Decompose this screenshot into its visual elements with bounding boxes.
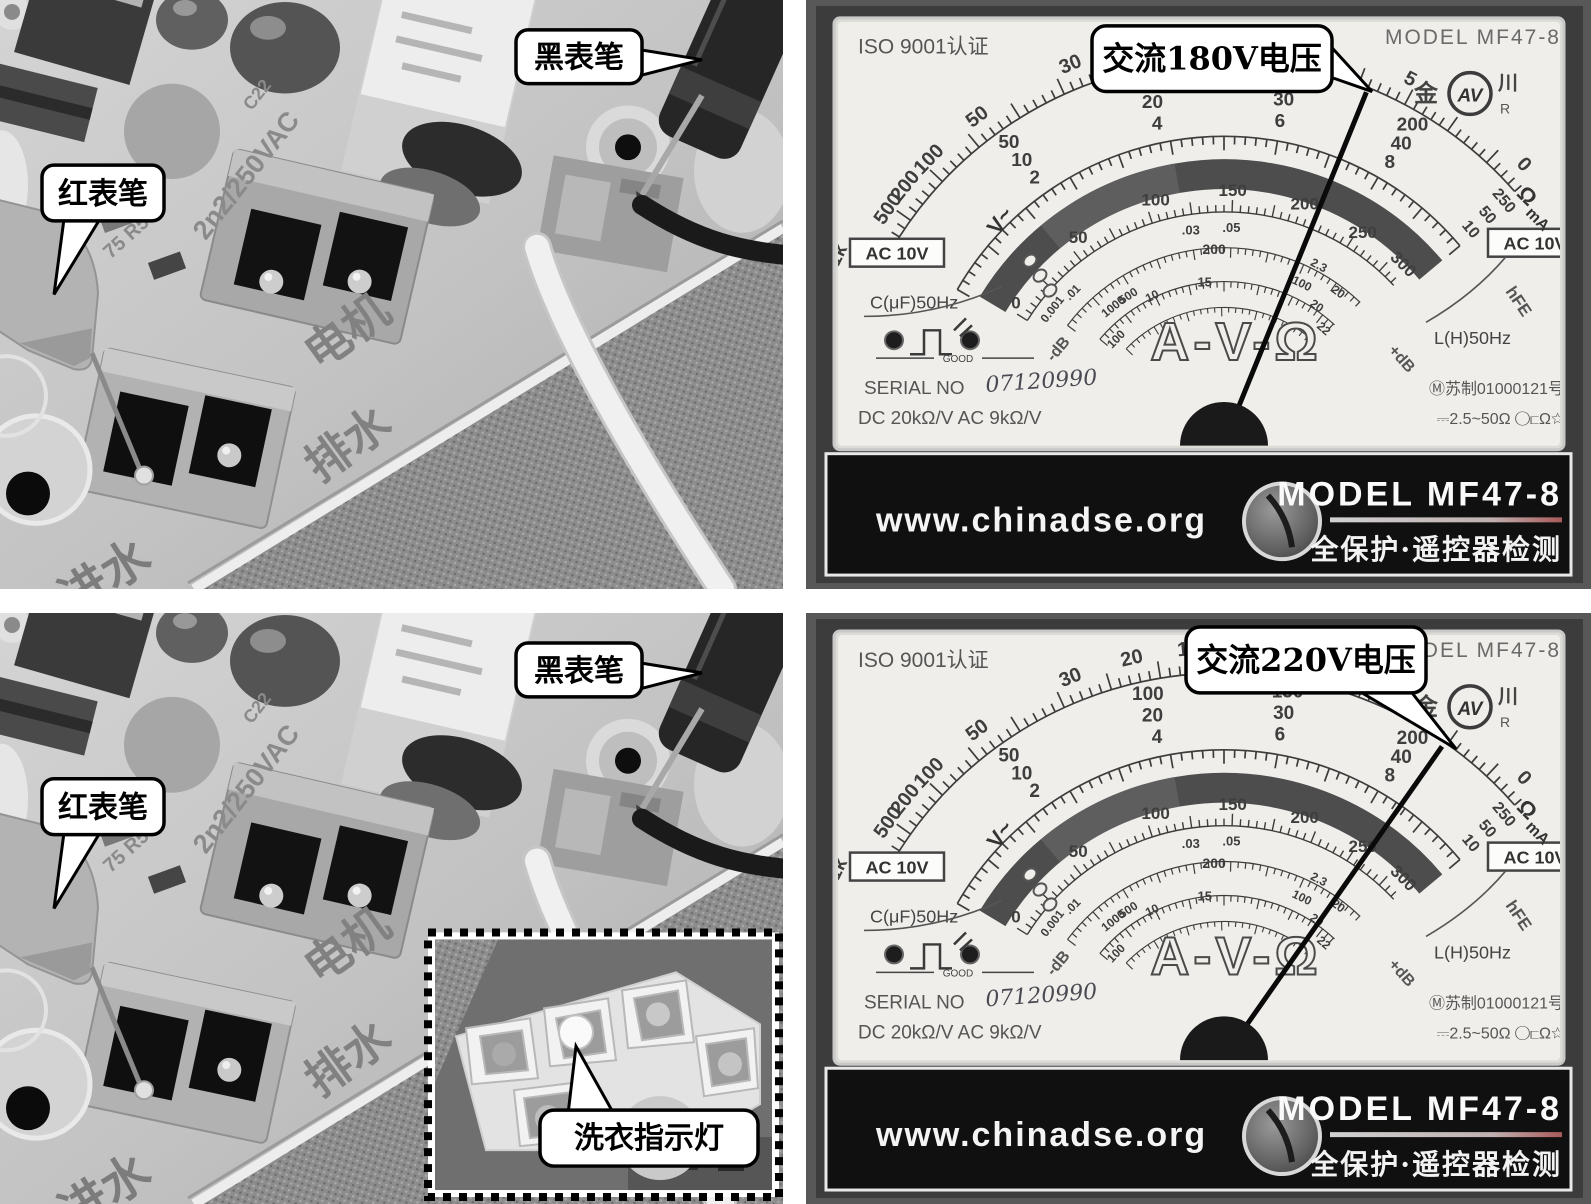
sensitivity: DC 20kΩ/V AC 9kΩ/V	[858, 1022, 1042, 1043]
ac10v_badge: AC 10V	[1504, 234, 1567, 254]
band-separator	[1330, 1132, 1562, 1137]
range_note: ⎓2.5~50Ω ◯⊏Ω☆	[1437, 411, 1564, 428]
scale-label: 2	[1029, 781, 1040, 802]
brand_r: R	[1500, 714, 1510, 730]
photo-board-180v: 黑表笔 红表笔	[0, 0, 783, 589]
scale-label: 200	[1291, 194, 1319, 213]
website: www.chinadse.org	[875, 501, 1207, 539]
callout-ac-voltage-label: 交流220V电压	[1196, 641, 1416, 679]
photo-meter-220v: 5002001005030201510501k4k∞05010210020415…	[806, 613, 1591, 1204]
band-separator	[1330, 517, 1562, 522]
scale-label: 8	[1385, 152, 1396, 173]
svg-text:黑表笔: 黑表笔	[534, 654, 624, 689]
scale-label: 30	[1273, 703, 1294, 724]
scale-label: 40	[1391, 747, 1412, 768]
scale-label: 200	[1202, 855, 1226, 871]
scale-label: 20	[1142, 705, 1163, 726]
scale-label: 0	[1011, 293, 1020, 312]
scale-label: 100	[1141, 191, 1169, 210]
led	[646, 1002, 670, 1026]
scale-label: 150	[1219, 795, 1247, 814]
ac10v_badge: AC 10V	[866, 244, 929, 264]
scale-label: 4	[1152, 727, 1163, 748]
scale-label: 6	[1275, 111, 1286, 132]
scale-label: 50	[1069, 842, 1088, 861]
range_note: ⎓2.5~50Ω ◯⊏Ω☆	[1437, 1025, 1564, 1042]
brand_r: R	[1500, 100, 1510, 116]
multimeter: 5002001005030201510501k4k∞05010210020415…	[806, 0, 1591, 589]
scale-label: 100	[1141, 804, 1169, 823]
scale-label: 50	[1069, 228, 1088, 247]
website: www.chinadse.org	[875, 1116, 1207, 1154]
photo-board-220v: 黑表笔 红表笔	[0, 613, 783, 1204]
iso_label: ISO 9001认证	[858, 649, 989, 672]
brand_mid: AV	[1457, 86, 1484, 107]
scale-label: 100	[1132, 684, 1164, 705]
indicator-led	[885, 331, 903, 349]
callout-wash-indicator-label: 洗衣指示灯	[574, 1121, 724, 1156]
led	[718, 1052, 742, 1076]
brand_mid: AV	[1457, 699, 1484, 720]
callout-ac-voltage: 交流180V电压	[1092, 26, 1372, 92]
multimeter: 5002001005030201510501k4k∞05010210020415…	[806, 613, 1591, 1204]
scale-label: .03	[1182, 222, 1200, 237]
ac10v_badge: AC 10V	[1504, 848, 1567, 868]
scale-label: 0	[1011, 907, 1020, 926]
serial_label: SERIAL NO	[864, 378, 965, 399]
photo-meter-180v: 5002001005030201510501k4k∞05010210020415…	[806, 0, 1591, 589]
scale-label: 15	[1197, 889, 1211, 904]
callout-red-probe-label: 红表笔	[58, 177, 148, 212]
scale-label: 200	[1202, 241, 1226, 257]
ac10v_badge: AC 10V	[866, 858, 929, 878]
indicator-led	[885, 945, 903, 963]
svg-text:红表笔: 红表笔	[58, 791, 148, 826]
cert: Ⓜ苏制01000121号	[1429, 380, 1564, 398]
scale-label: 2	[1029, 168, 1040, 189]
scale-label: .05	[1222, 220, 1240, 235]
scale-label: 250	[1349, 223, 1377, 242]
model-label: MODEL MF47-8	[1277, 1090, 1562, 1128]
good_label: GOOD	[943, 354, 974, 365]
l_scale_label: L(H)50Hz	[1434, 328, 1511, 348]
scale-label: 200	[1291, 808, 1319, 827]
scale-label: 6	[1275, 725, 1286, 746]
iso_label: ISO 9001认证	[858, 36, 989, 59]
model_top: MODEL MF47-8	[1385, 26, 1561, 49]
model-label: MODEL MF47-8	[1277, 476, 1562, 514]
l_scale_label: L(H)50Hz	[1434, 942, 1511, 962]
brand_right: 川	[1497, 73, 1518, 95]
brand_right: 川	[1497, 686, 1518, 708]
c_scale_label: C(μF)50Hz	[870, 906, 958, 926]
led	[492, 1042, 516, 1066]
scale-label: 20	[1142, 92, 1163, 113]
brand_left: 金	[1413, 80, 1439, 108]
sensitivity: DC 20kΩ/V AC 9kΩ/V	[858, 408, 1042, 429]
scale-label: 4	[1152, 113, 1163, 134]
callout-black-probe-label: 黑表笔	[534, 41, 624, 76]
scale-label: 150	[1219, 181, 1247, 200]
good_label: GOOD	[943, 968, 974, 979]
band-caption: 全保护·遥控器检测	[1309, 533, 1562, 566]
scale-label: 8	[1385, 766, 1396, 787]
band-caption: 全保护·遥控器检测	[1309, 1148, 1562, 1181]
avo-mark: A-V-Ω	[1150, 312, 1321, 372]
callout-ac-voltage-label: 交流180V电压	[1102, 40, 1322, 78]
scale-label: .05	[1222, 834, 1240, 849]
scale-label: 40	[1391, 133, 1412, 154]
scale-label: .03	[1182, 836, 1200, 851]
serial_label: SERIAL NO	[864, 992, 965, 1013]
inset-led-housing: 洗衣指示灯	[428, 932, 779, 1197]
c_scale_label: C(μF)50Hz	[870, 292, 958, 312]
cert: Ⓜ苏制01000121号	[1429, 994, 1564, 1012]
scale-label: 15	[1197, 275, 1211, 290]
